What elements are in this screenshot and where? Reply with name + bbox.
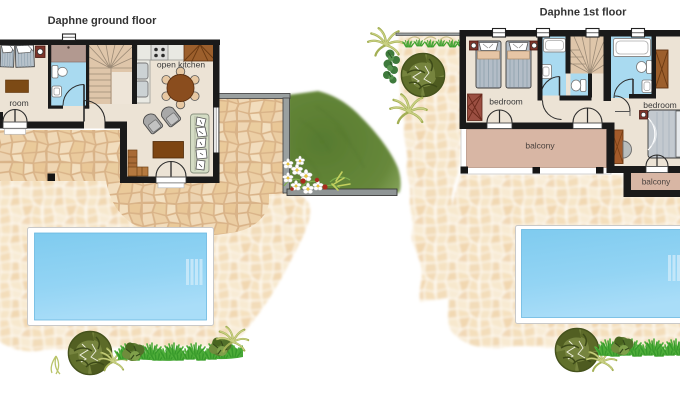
svg-text:Daphne ground floor: Daphne ground floor bbox=[48, 15, 157, 27]
svg-text:Daphne 1st floor: Daphne 1st floor bbox=[540, 7, 628, 19]
svg-text:room: room bbox=[9, 98, 28, 108]
svg-text:balcony: balcony bbox=[642, 177, 671, 187]
svg-text:bedroom: bedroom bbox=[643, 100, 677, 110]
svg-text:balcony: balcony bbox=[525, 141, 555, 151]
svg-text:bedroom: bedroom bbox=[489, 97, 523, 107]
